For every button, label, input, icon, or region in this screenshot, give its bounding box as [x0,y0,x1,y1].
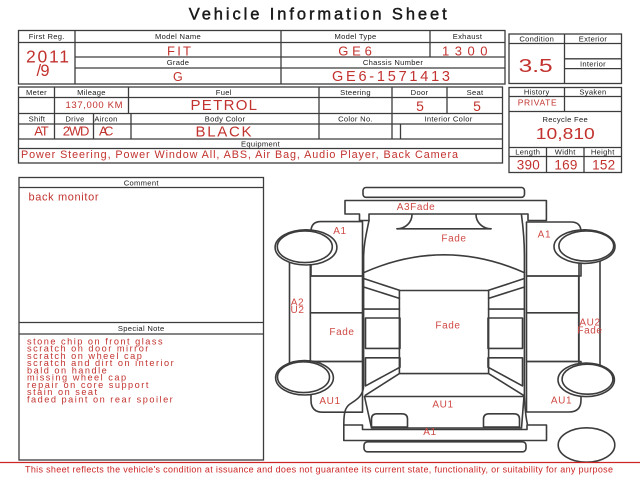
svg-text:Interior: Interior [580,59,606,68]
svg-text:AT: AT [34,124,49,139]
svg-text:PETROL: PETROL [191,97,258,114]
svg-text:A3Fade: A3Fade [397,202,436,213]
svg-text:G: G [173,70,183,84]
svg-text:Special Note: Special Note [118,324,165,333]
svg-text:Aircon: Aircon [94,114,117,123]
svg-text:GE6-1571413: GE6-1571413 [332,69,450,85]
svg-text:faded paint on rear spoiler: faded paint on rear spoiler [27,394,174,404]
svg-text:Body Color: Body Color [205,114,246,123]
svg-text:First Reg.: First Reg. [29,32,65,41]
svg-text:A1: A1 [538,229,551,240]
svg-text:169: 169 [554,157,577,172]
svg-text:GE6: GE6 [338,43,372,58]
svg-text:FIT: FIT [167,43,191,58]
svg-text:Color No.: Color No. [338,114,373,123]
svg-text:Syaken: Syaken [579,88,606,97]
svg-text:Fuel: Fuel [216,88,232,97]
svg-text:A1: A1 [333,226,346,237]
svg-text:Condition: Condition [519,35,554,44]
svg-text:Height: Height [591,148,615,157]
svg-text:Power Steering, Power Window: Power Steering, Power Window All, ABS, A… [21,149,458,161]
svg-text:Meter: Meter [26,88,47,97]
svg-text:5: 5 [416,98,424,114]
svg-text:Vehicle Information Sheet: Vehicle Information Sheet [189,6,447,24]
svg-text:152: 152 [592,157,615,172]
svg-text:PRIVATE: PRIVATE [518,97,557,107]
svg-text:This sheet reflects the vehicl: This sheet reflects the vehicle's condit… [25,465,613,475]
svg-text:Chassis Number: Chassis Number [363,58,423,67]
svg-text:137,000 KM: 137,000 KM [66,100,123,111]
svg-text:5: 5 [473,98,481,114]
svg-text:Length: Length [515,148,540,157]
svg-text:Seat: Seat [467,88,484,97]
svg-text:Model Name: Model Name [155,32,201,41]
svg-text:Recycle Fee: Recycle Fee [542,115,588,124]
svg-text:Fade: Fade [441,233,466,244]
svg-text:Shift: Shift [29,114,46,123]
svg-text:Interior Color: Interior Color [424,114,472,123]
svg-text:A1: A1 [423,427,436,438]
svg-text:Fade: Fade [329,327,354,338]
svg-text:Equipment: Equipment [241,140,281,149]
svg-text:Mileage: Mileage [77,88,106,97]
svg-text:History: History [524,88,550,97]
svg-text:10,810: 10,810 [536,126,595,143]
svg-text:Comment: Comment [124,178,160,187]
svg-text:Steering: Steering [340,88,371,97]
svg-text:2WD: 2WD [63,124,90,139]
svg-text:Fade: Fade [577,325,602,336]
svg-text:Drive: Drive [65,114,84,123]
svg-text:390: 390 [517,157,540,172]
svg-text:Fade: Fade [435,320,460,331]
svg-text:Exhaust: Exhaust [453,32,483,41]
svg-text:Exterior: Exterior [579,35,608,44]
svg-text:AU1: AU1 [319,396,340,407]
svg-text:AU1: AU1 [551,395,572,406]
svg-text:Grade: Grade [167,58,190,67]
svg-text:AC: AC [99,124,113,139]
svg-text:AU1: AU1 [432,399,453,410]
svg-text:U2: U2 [291,305,305,316]
svg-text:Model Type: Model Type [334,32,376,41]
svg-text:3.5: 3.5 [519,56,553,76]
svg-text:back monitor: back monitor [29,192,99,204]
svg-text:Door: Door [411,88,429,97]
svg-text:BLACK: BLACK [196,124,252,141]
svg-text:/9: /9 [37,62,50,80]
svg-text:Widht: Widht [555,148,577,157]
